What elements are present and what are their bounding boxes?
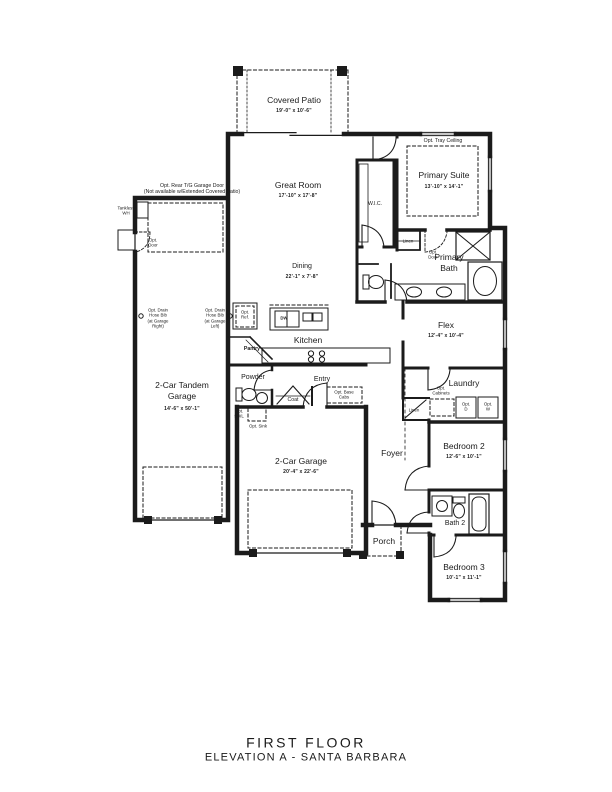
room-label-powder: Powder <box>241 374 265 382</box>
annotation-line: D <box>462 407 470 412</box>
annotation-line: SWL <box>234 414 244 419</box>
annotation-opt-swl: Opt. SWL <box>234 409 244 420</box>
room-label-bath2: Bath 2 <box>445 520 465 528</box>
annotation-line: W <box>484 407 492 412</box>
room-label-covered-patio: Covered Patio <box>267 95 321 105</box>
annotation-opt-rear-garage-door: Opt. Rear T/G Garage Door (Not available… <box>144 183 240 195</box>
annotation-linen-primary: Linen <box>403 238 414 243</box>
annotation-line: (Not available w/Extended Covered Patio) <box>144 189 240 195</box>
annotation-line: Ref. <box>241 315 249 320</box>
annotation-opt-door-wh: Opt. Door <box>148 238 158 249</box>
fixtures <box>118 164 502 534</box>
floor-title: FIRST FLOOR <box>246 735 366 752</box>
room-dims-primary-suite: 13'-10" x 14'-1" <box>425 184 464 190</box>
room-label-entry: Entry <box>314 376 330 384</box>
room-dims-flex: 12'-4" x 10'-4" <box>428 333 464 339</box>
annotation-line: Hose Bib <box>148 313 169 318</box>
room-label-coat: Coat <box>288 397 299 403</box>
room-label-laundry: Laundry <box>449 378 480 388</box>
room-label-garage: 2-Car Garage <box>275 456 327 466</box>
room-label-kitchen: Kitchen <box>294 335 322 345</box>
floor-plan-sheet: Covered Patio 19'-0" x 10'-6" Great Room… <box>0 0 612 792</box>
room-label-pantry: Pantry <box>244 346 260 352</box>
room-dims-dining: 22'-1" x 7'-8" <box>286 274 319 280</box>
annotation-opt-sink: Opt. Sink <box>249 423 267 428</box>
room-label-great-room: Great Room <box>275 180 321 190</box>
annotation-line: WH <box>117 211 134 216</box>
annotation-drain-hose-bib-left: Opt. Drain Hose Bib (at Garage Left) <box>205 307 226 328</box>
room-label-porch: Porch <box>373 536 395 546</box>
room-dims-great-room: 17'-10" x 17'-8" <box>279 193 318 199</box>
room-label-flex: Flex <box>438 320 454 330</box>
annotation-line: Cabs <box>334 395 354 400</box>
annotation-opt-cabinets: Opt. Cabinets <box>432 386 449 397</box>
annotation-tankless-wh: Tankless WH <box>117 206 134 217</box>
annotation-line: Hose Bib <box>205 313 226 318</box>
annotation-line: Left) <box>205 323 226 328</box>
annotation-opt-washer: Opt. W <box>484 402 492 413</box>
annotation-line: Cabinets <box>432 391 449 396</box>
floor-plan-drawing <box>0 0 612 792</box>
elevation-subtitle: ELEVATION A - SANTA BARBARA <box>205 751 407 764</box>
room-label-wic: W.I.C. <box>368 201 382 207</box>
annotation-line: Door <box>148 243 158 248</box>
annotation-linen-hall: Linen <box>409 407 420 412</box>
annotation-line: Right) <box>148 323 169 328</box>
room-label-dining: Dining <box>292 263 312 271</box>
room-label-bedroom3: Bedroom 3 <box>443 562 485 572</box>
annotation-drain-hose-bib-right: Opt. Drain Hose Bib (at Garage Right) <box>148 307 169 328</box>
room-dims-tandem-garage: 14'-6" x 50'-1" <box>164 406 200 412</box>
room-dims-covered-patio: 19'-0" x 10'-6" <box>276 108 312 114</box>
room-label-tandem-garage: 2-Car Tandem Garage <box>149 380 215 402</box>
room-dims-bedroom3: 10'-1" x 11'-1" <box>446 575 481 581</box>
room-label-foyer: Foyer <box>381 448 403 458</box>
room-label-bedroom2: Bedroom 2 <box>443 441 485 451</box>
annotation-opt-ref: Opt. Ref. <box>241 310 249 321</box>
room-dims-bedroom2: 12'-6" x 10'-1" <box>446 454 482 460</box>
annotation-opt-base-cabs: Opt. Base Cabs <box>334 390 354 401</box>
annotation-opt-tray-ceiling: Opt. Tray Ceiling <box>424 138 463 144</box>
annotation-dw: DW <box>280 315 287 320</box>
room-label-primary-bath: Primary Bath <box>428 252 470 274</box>
room-label-primary-suite: Primary Suite <box>418 170 469 180</box>
annotation-opt-dryer: Opt. D <box>462 402 470 413</box>
room-dims-garage: 20'-4" x 22'-6" <box>283 469 319 475</box>
